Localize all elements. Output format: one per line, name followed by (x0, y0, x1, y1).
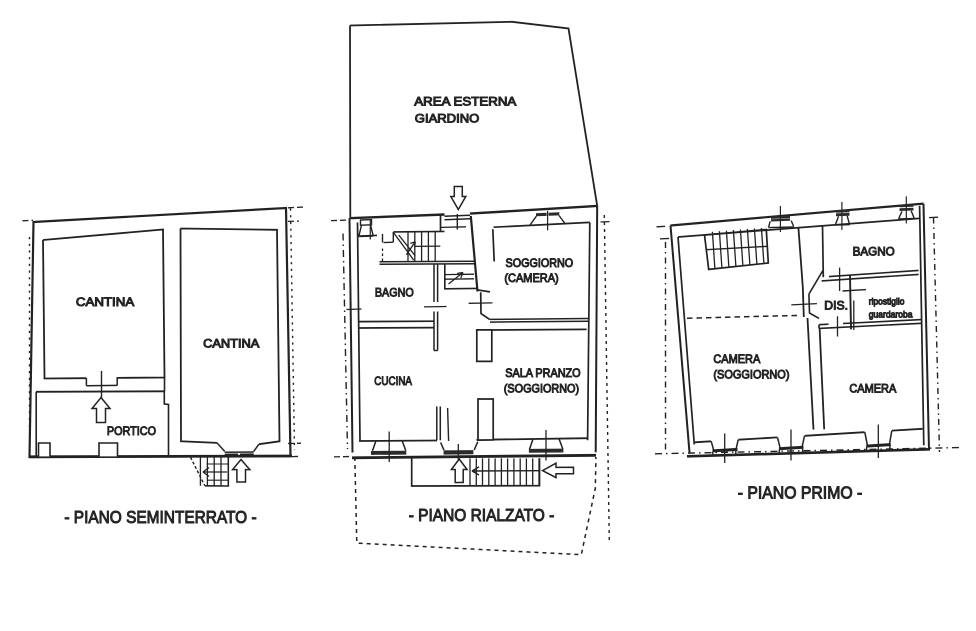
svg-text:guardaroba: guardaroba (869, 310, 913, 321)
svg-text:CUCINA: CUCINA (374, 374, 412, 388)
svg-text:SALA PRANZO: SALA PRANZO (505, 366, 580, 380)
svg-text:(CAMERA): (CAMERA) (504, 271, 558, 285)
svg-text:- PIANO PRIMO -: - PIANO PRIMO - (738, 483, 863, 503)
svg-text:(SOGGIORNO): (SOGGIORNO) (504, 382, 579, 396)
svg-text:PORTICO: PORTICO (107, 424, 156, 438)
svg-text:- PIANO RIALZATO -: - PIANO RIALZATO - (409, 505, 555, 525)
svg-text:CANTINA: CANTINA (76, 295, 134, 309)
svg-text:ripostiglio: ripostiglio (869, 297, 905, 308)
svg-text:SOGGIORNO: SOGGIORNO (506, 256, 574, 270)
svg-text:DIS.: DIS. (824, 298, 848, 312)
svg-text:(SOGGIORNO): (SOGGIORNO) (713, 367, 789, 381)
svg-text:BAGNO: BAGNO (375, 285, 414, 299)
svg-text:CAMERA: CAMERA (713, 352, 760, 366)
svg-text:BAGNO: BAGNO (853, 245, 895, 259)
svg-text:CAMERA: CAMERA (849, 382, 896, 396)
svg-text:AREA ESTERNA: AREA ESTERNA (414, 95, 516, 109)
svg-text:GIARDINO: GIARDINO (415, 112, 480, 126)
svg-text:CANTINA: CANTINA (203, 337, 259, 351)
svg-text:- PIANO SEMINTERRATO -: - PIANO SEMINTERRATO - (64, 507, 256, 527)
